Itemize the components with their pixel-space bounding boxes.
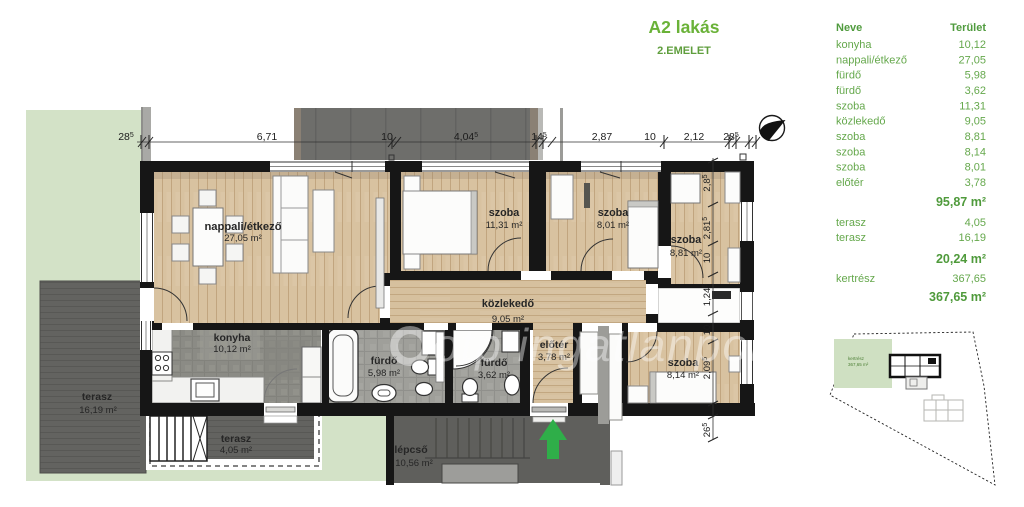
svg-text:10: 10 — [702, 253, 713, 264]
svg-text:fürdő: fürdő — [836, 85, 861, 97]
svg-text:11,31 m²: 11,31 m² — [486, 220, 523, 231]
svg-text:27,05: 27,05 — [958, 54, 986, 66]
svg-text:8,81: 8,81 — [965, 131, 986, 143]
svg-text:367,65: 367,65 — [952, 273, 986, 285]
svg-text:27,05 m²: 27,05 m² — [224, 233, 262, 244]
svg-text:4,05 m²: 4,05 m² — [220, 445, 252, 456]
svg-text:10,56 m²: 10,56 m² — [395, 458, 433, 469]
svg-text:11,31: 11,31 — [959, 100, 986, 112]
svg-text:8,01 m²: 8,01 m² — [597, 220, 629, 231]
svg-text:367,65 m²: 367,65 m² — [929, 290, 986, 304]
svg-text:otp ingatlanpont: otp ingatlanpont — [433, 319, 793, 371]
svg-text:terasz: terasz — [82, 391, 112, 403]
svg-text:terasz: terasz — [836, 217, 866, 229]
svg-text:Neve: Neve — [836, 22, 862, 34]
svg-text:fürdő: fürdő — [836, 70, 861, 82]
svg-text:16,19 m²: 16,19 m² — [79, 405, 117, 416]
svg-text:2,87: 2,87 — [592, 131, 613, 143]
svg-text:szoba: szoba — [598, 207, 630, 219]
svg-text:95,87 m²: 95,87 m² — [936, 195, 986, 209]
svg-text:3,78: 3,78 — [965, 177, 986, 189]
svg-text:előtér: előtér — [836, 177, 864, 189]
svg-text:6,71: 6,71 — [257, 131, 278, 143]
svg-text:nappali/étkező: nappali/étkező — [204, 221, 281, 233]
svg-text:A2 lakás: A2 lakás — [648, 17, 719, 37]
svg-text:10,12: 10,12 — [958, 39, 986, 51]
svg-text:konyha: konyha — [836, 39, 872, 51]
svg-text:terasz: terasz — [221, 433, 251, 445]
svg-text:Terület: Terület — [950, 22, 986, 34]
svg-text:20,24 m²: 20,24 m² — [936, 252, 986, 266]
svg-text:367,65 m²: 367,65 m² — [848, 362, 869, 367]
svg-text:szoba: szoba — [489, 207, 521, 219]
svg-text:2.EMELET: 2.EMELET — [657, 45, 711, 57]
svg-text:5,98: 5,98 — [965, 70, 986, 82]
svg-text:3,62: 3,62 — [965, 85, 986, 97]
svg-text:16,19: 16,19 — [958, 232, 986, 244]
svg-text:2,12: 2,12 — [684, 131, 705, 143]
svg-text:közlekedő: közlekedő — [482, 298, 535, 310]
svg-text:10: 10 — [381, 131, 393, 143]
svg-text:nappali/étkező: nappali/étkező — [836, 54, 907, 66]
svg-text:5,98 m²: 5,98 m² — [368, 368, 400, 379]
svg-text:kertrész: kertrész — [848, 356, 865, 361]
svg-text:kertrész: kertrész — [836, 273, 875, 285]
svg-text:szoba: szoba — [836, 100, 866, 112]
svg-text:8,81 m²: 8,81 m² — [670, 248, 702, 259]
svg-text:9,05: 9,05 — [965, 116, 986, 128]
svg-text:konyha: konyha — [214, 332, 251, 344]
svg-text:8,14 m²: 8,14 m² — [667, 370, 699, 381]
svg-text:szoba: szoba — [836, 131, 866, 143]
svg-text:szoba: szoba — [671, 234, 703, 246]
svg-text:szoba: szoba — [836, 146, 866, 158]
svg-text:8,14: 8,14 — [965, 146, 986, 158]
svg-text:10: 10 — [644, 131, 656, 143]
svg-text:3,62 m²: 3,62 m² — [478, 370, 510, 381]
svg-text:közlekedő: közlekedő — [836, 116, 886, 128]
svg-text:8,01: 8,01 — [965, 162, 986, 174]
svg-text:10,12 m²: 10,12 m² — [213, 344, 251, 355]
svg-text:terasz: terasz — [836, 232, 866, 244]
svg-text:szoba: szoba — [836, 162, 866, 174]
svg-text:4,05: 4,05 — [965, 217, 986, 229]
svg-text:lépcső: lépcső — [394, 444, 427, 456]
